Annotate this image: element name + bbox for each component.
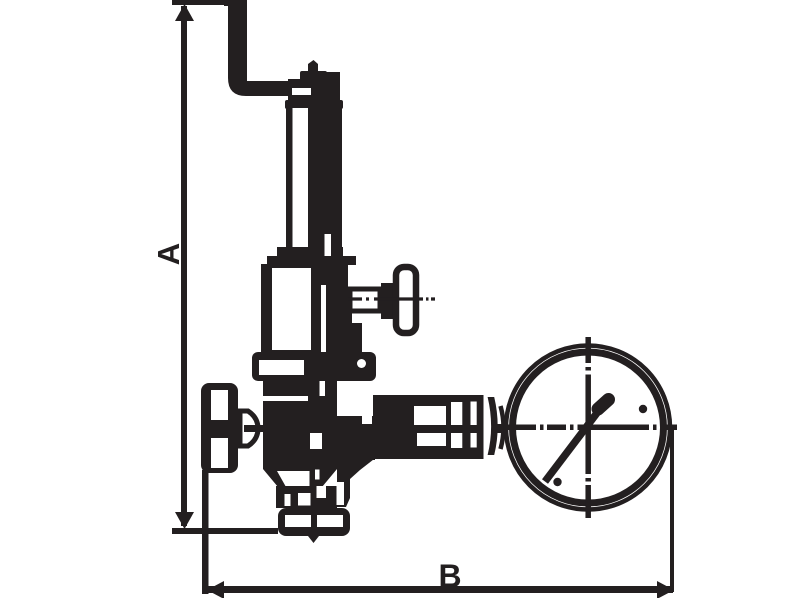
svg-text:B: B [438,558,461,594]
svg-text:A: A [151,243,186,265]
